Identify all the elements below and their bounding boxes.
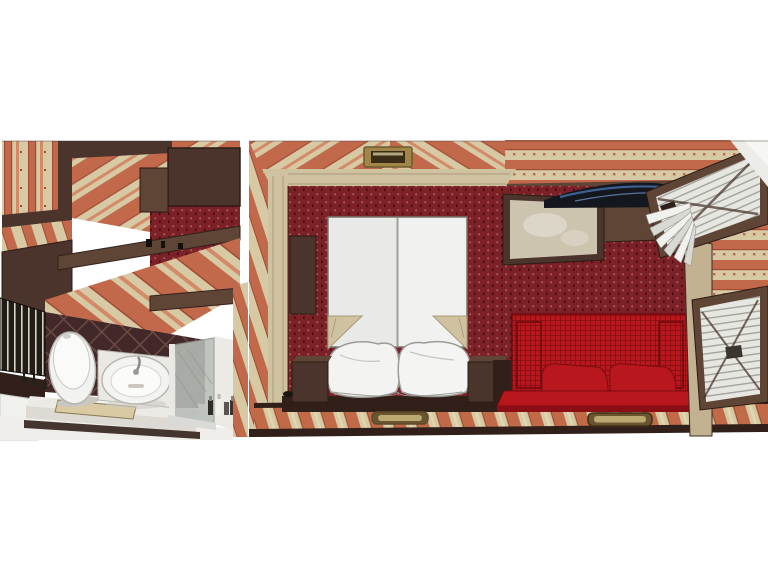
ceiling-lamp	[364, 147, 412, 167]
shower-glass	[172, 338, 214, 425]
floor-hatch-handle-bedroom	[372, 412, 428, 424]
bedroom-wall-cabinet	[290, 236, 316, 314]
glass-frame	[169, 344, 175, 420]
pillow-left	[327, 342, 400, 398]
shower-wall	[214, 336, 233, 430]
section-cut-edge	[233, 282, 248, 437]
folded-lower-berth	[692, 286, 768, 410]
berth-latch	[725, 345, 743, 359]
render-canvas	[0, 0, 768, 576]
sofa-base	[497, 406, 702, 412]
red-sofa	[493, 314, 702, 412]
cup	[283, 391, 293, 397]
sofa-cushion-left	[542, 364, 608, 392]
interior-render	[0, 0, 768, 576]
sofa-cushion-right	[610, 364, 676, 392]
upper-cabinet-side	[140, 168, 168, 212]
bathroom-section	[0, 141, 248, 440]
sofa-seat	[497, 391, 702, 406]
floor-hatch-handle-lounge	[588, 413, 652, 426]
shower	[168, 336, 233, 430]
upper-cabinet	[168, 148, 240, 206]
pillow-right	[398, 342, 470, 397]
slatted-window	[0, 298, 45, 376]
drain-lever	[128, 384, 144, 388]
